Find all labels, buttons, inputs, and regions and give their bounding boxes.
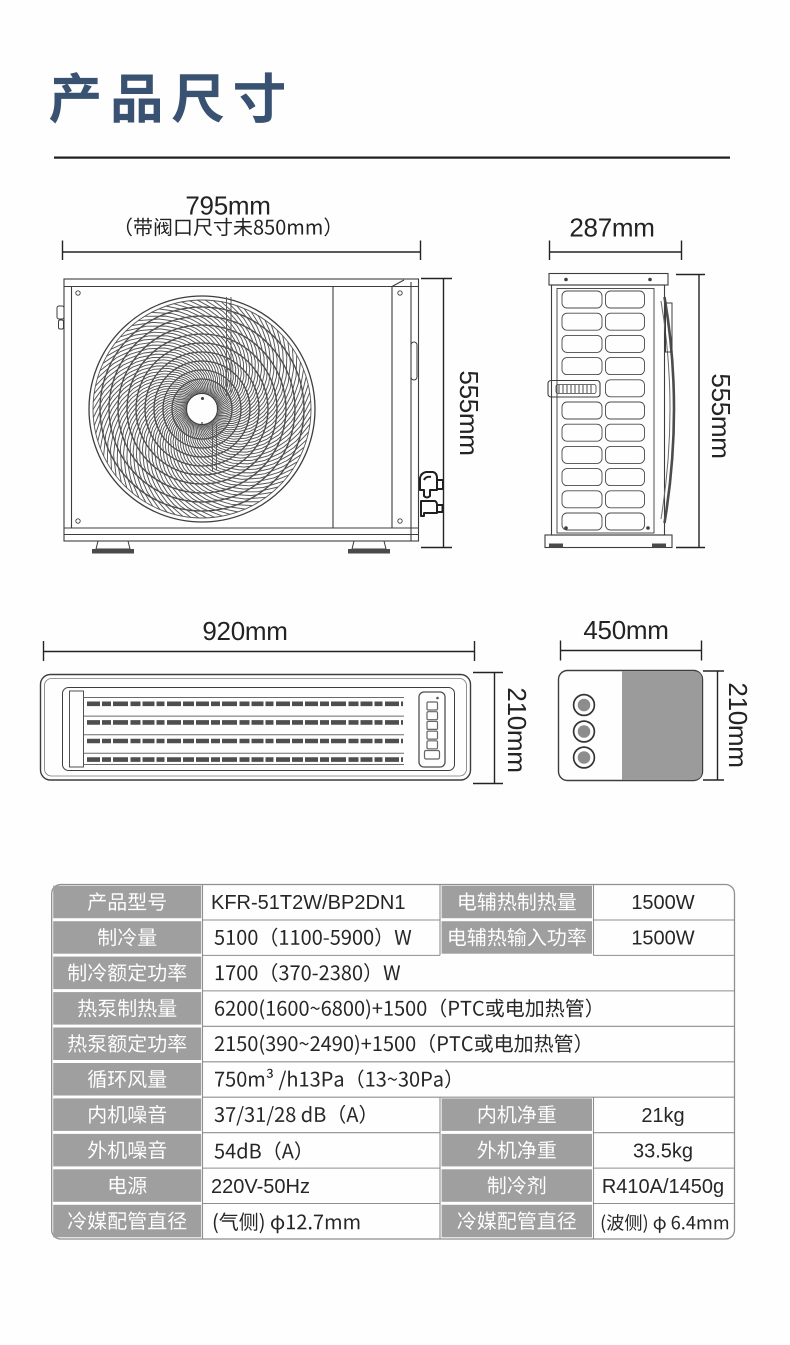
svg-text:1500W: 1500W (631, 892, 694, 914)
svg-text:287mm: 287mm (569, 213, 654, 243)
svg-text:795mm: 795mm (185, 191, 270, 221)
svg-text:920mm: 920mm (202, 616, 287, 646)
svg-text:450mm: 450mm (583, 615, 668, 645)
svg-text:555mm: 555mm (454, 370, 484, 455)
svg-text:555mm: 555mm (706, 373, 736, 458)
svg-text:R410A/1450g: R410A/1450g (602, 1176, 724, 1198)
svg-text:21kg: 21kg (641, 1105, 684, 1127)
svg-text:33.5kg: 33.5kg (633, 1140, 693, 1162)
svg-text:1500W: 1500W (631, 928, 694, 950)
svg-text:KFR-51T2W/BP2DN1: KFR-51T2W/BP2DN1 (211, 892, 406, 914)
svg-text:210mm: 210mm (502, 687, 532, 772)
svg-text:220V-50Hz: 220V-50Hz (211, 1176, 310, 1198)
svg-text:210mm: 210mm (723, 682, 753, 767)
